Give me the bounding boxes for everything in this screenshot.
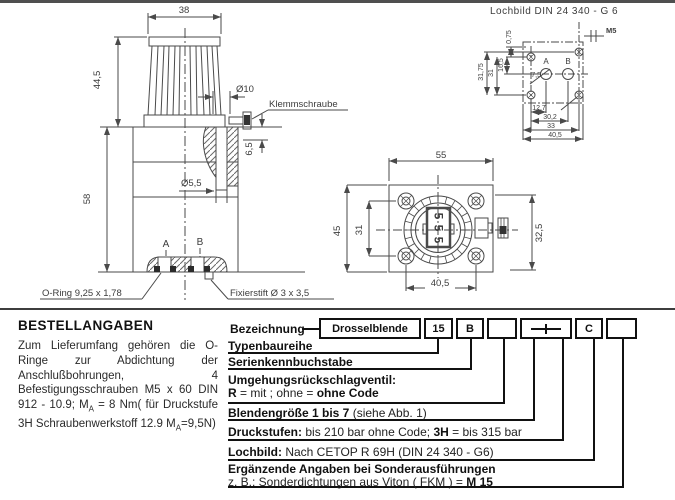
counter-digit-1: 5 [432, 213, 446, 220]
order-row-sonderausfuehrung: Ergänzende Angaben bei Sonderausführunge… [228, 463, 624, 488]
side-view-drawing: 38 44,5 58 Ø10 Klemmschraube Ø5,5 6,5 A … [0, 0, 350, 308]
m5-label: M5 [606, 26, 616, 35]
bestellangaben-block: BESTELLANGABEN Zum Lieferumfang gehören … [18, 318, 218, 436]
bezeichnung-label: Bezeichnung [230, 322, 305, 336]
row4-bold: Blendengröße 1 bis 7 [228, 406, 349, 420]
counter-digit-3: 5 [432, 237, 446, 244]
row7-text: z. B.: Sonderdichtungen aus Viton ( FKM … [228, 475, 466, 489]
hole-a-label: A [543, 57, 549, 66]
dim-16-5-label: 16,5 [498, 58, 505, 72]
code-box-sonderausfuehrung [606, 318, 637, 339]
datasheet-page: 38 44,5 58 Ø10 Klemmschraube Ø5,5 6,5 A … [0, 0, 675, 500]
row7-line1: Ergänzende Angaben bei Sonderausführunge… [228, 462, 496, 476]
dim-38-label: 38 [179, 5, 190, 16]
bestellangaben-text-3: =9,5N) [181, 418, 216, 430]
section-divider [0, 308, 675, 310]
dim-45-label: 45 [332, 226, 343, 237]
lochbild-title: Lochbild DIN 24 340 - G 6 [490, 6, 618, 17]
code-box-serienkennbuchstabe: B [456, 318, 484, 339]
row3-line1: Umgehungsrückschlagventil: [228, 373, 396, 387]
oring-label: O-Ring 9,25 x 1,78 [42, 288, 122, 299]
dim-6-5-label: 6,5 [244, 142, 255, 155]
m5-callout [584, 30, 604, 42]
row6-text: Nach CETOP R 69H (DIN 24 340 - G6) [282, 445, 494, 459]
code-box-rueckschlagventil [487, 318, 517, 339]
dim-0-75-label: 0,75 [506, 30, 513, 44]
dim-12-7-label: 12,7 [532, 105, 546, 112]
dim-31 [369, 201, 396, 256]
dim-d5-5-label: Ø5,5 [181, 178, 202, 189]
clamp-screw [229, 110, 348, 129]
row4-text: (siehe Abb. 1) [349, 406, 426, 420]
lochbild-drawing: Lochbild DIN 24 340 - G 6 M5 0,75 16,5 3… [478, 0, 675, 150]
dim-44-5-label: 44,5 [92, 71, 103, 90]
klemmschraube-label: Klemmschraube [269, 99, 338, 110]
row7-code-m15: M 15 [466, 475, 493, 489]
clamp-boss-section [203, 127, 238, 203]
dim-40-5-label-lochbild: 40,5 [548, 132, 562, 139]
dim-31-label: 31 [354, 225, 365, 236]
row3-code-r: R [228, 386, 237, 400]
code-box-blendengroesse-druckstufe [520, 318, 572, 339]
row6-bold: Lochbild: [228, 445, 282, 459]
row1-text: Typenbaureihe [228, 339, 312, 353]
dim-55 [389, 158, 493, 181]
code-box-drosselblende: Drosselblende [319, 318, 421, 339]
dim-30-2-label: 30,2 [543, 114, 557, 121]
bezeichnung-connector [302, 328, 319, 330]
order-row-serienkennbuchstabe: Serienkennbuchstabe [228, 356, 472, 370]
order-row-druckstufen: Druckstufen: bis 210 bar ohne Code; 3H =… [228, 426, 564, 441]
port-a-label: A [163, 239, 170, 250]
row5-text1: bis 210 bar ohne Code; [302, 425, 433, 439]
order-row-blendengroesse: Blendengröße 1 bis 7 (siehe Abb. 1) [228, 407, 535, 421]
row5-bold1: Druckstufen: [228, 425, 302, 439]
dim-33-label: 33 [547, 123, 555, 130]
row3-ohne-code: ohne Code [317, 386, 379, 400]
bestellangaben-body: Zum Lieferumfang gehören die O-Ringe zur… [18, 339, 218, 436]
bestellangaben-title: BESTELLANGABEN [18, 318, 218, 333]
row2-text: Serienkennbuchstabe [228, 355, 353, 369]
dim-32-5-label: 32,5 [534, 224, 545, 243]
drop-line-6 [593, 339, 595, 461]
dim-45 [347, 185, 387, 272]
order-row-lochbild: Lochbild: Nach CETOP R 69H (DIN 24 340 -… [228, 446, 595, 461]
code-box-typenbaureihe: 15 [424, 318, 453, 339]
row5-text2: = bis 315 bar [449, 425, 522, 439]
dim-d10-label: Ø10 [236, 84, 254, 95]
port-b-label: B [197, 237, 204, 248]
dim-31-label-lochbild: 31 [488, 69, 495, 77]
fixierstift-label: Fixierstift Ø 3 x 3,5 [230, 288, 309, 299]
hole-b-label: B [565, 57, 570, 66]
dim-40-5-label: 40,5 [431, 278, 450, 289]
counter-digit-2: 5 [432, 225, 446, 232]
dim-44-5 [114, 37, 147, 127]
dim-7-5-label: 7,5 [531, 72, 541, 79]
order-row-rueckschlagventil: Umgehungsrückschlagventil: R = mit ; ohn… [228, 374, 505, 404]
row3-text: = mit ; ohne = [237, 386, 317, 400]
size-placeholder-symbol [531, 328, 561, 330]
dim-31-75-label: 31,75 [478, 63, 485, 81]
front-clamp-screw [475, 218, 508, 238]
dim-58-label: 58 [82, 194, 93, 205]
row5-code-3h: 3H [433, 425, 448, 439]
front-view-drawing: 5 5 5 55 45 31 32,5 40,5 [330, 145, 560, 305]
valve-body [98, 127, 305, 272]
order-row-typenbaureihe: Typenbaureihe [228, 340, 439, 354]
code-box-lochbild: C [575, 318, 603, 339]
dim-55-label: 55 [436, 150, 447, 161]
